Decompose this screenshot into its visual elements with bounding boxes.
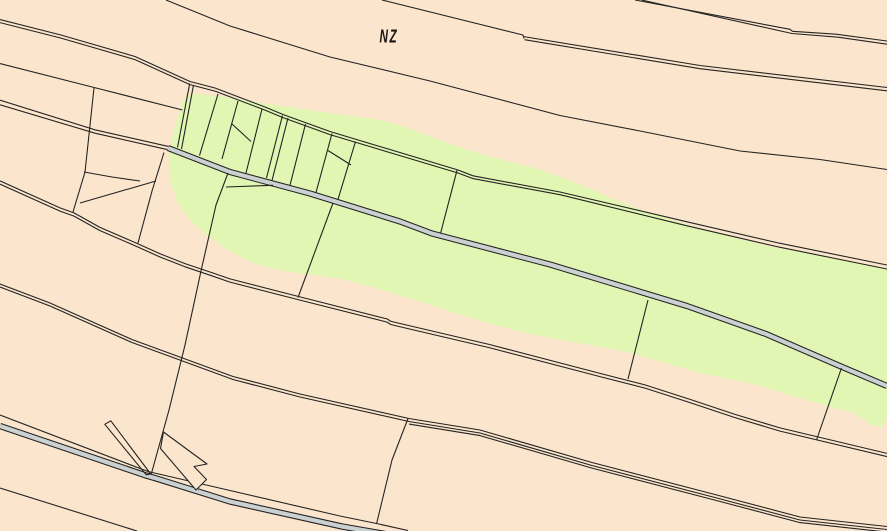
svg-text:NZ: NZ xyxy=(380,27,399,47)
